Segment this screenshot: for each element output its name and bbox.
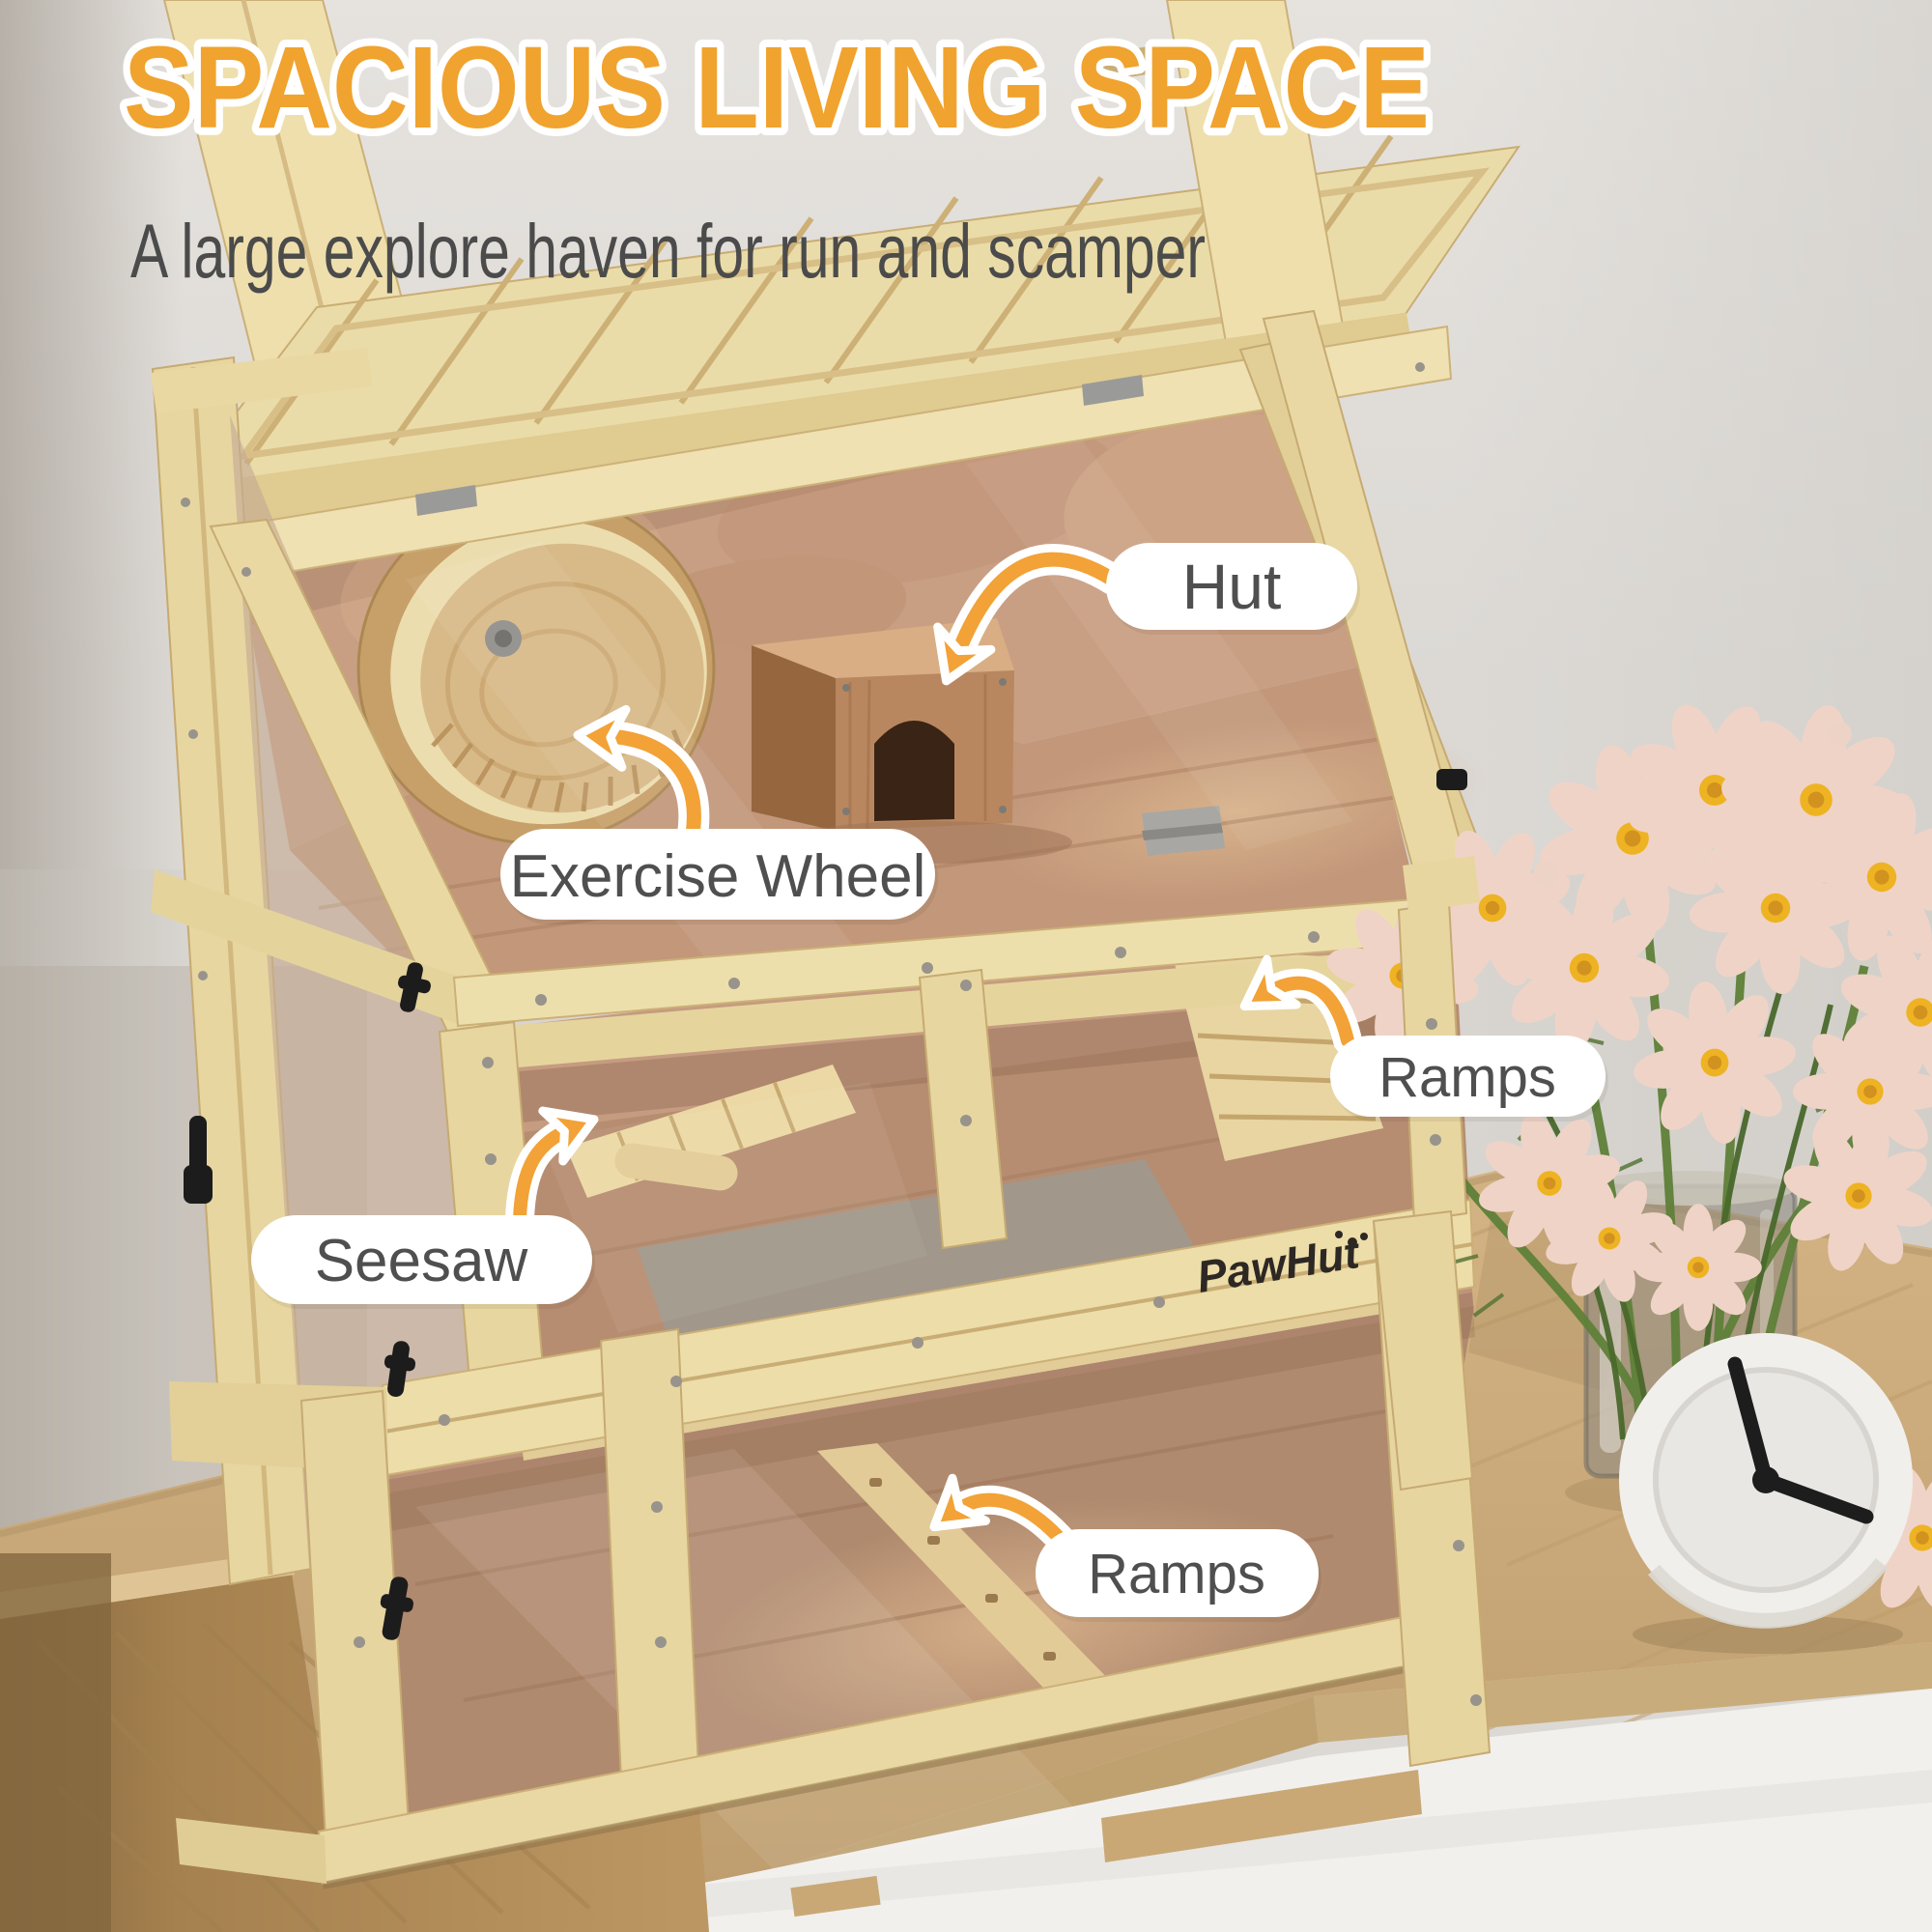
svg-text:Exercise Wheel: Exercise Wheel [510,843,926,910]
svg-text:Hut: Hut [1182,551,1282,622]
svg-text:Ramps: Ramps [1088,1543,1265,1605]
svg-text:A large explore haven for run: A large explore haven for run and scampe… [130,208,1206,294]
svg-text:Seesaw: Seesaw [315,1228,528,1294]
svg-text:Ramps: Ramps [1378,1046,1556,1109]
svg-text:SPACIOUS LIVING SPACE: SPACIOUS LIVING SPACE [124,21,1430,153]
